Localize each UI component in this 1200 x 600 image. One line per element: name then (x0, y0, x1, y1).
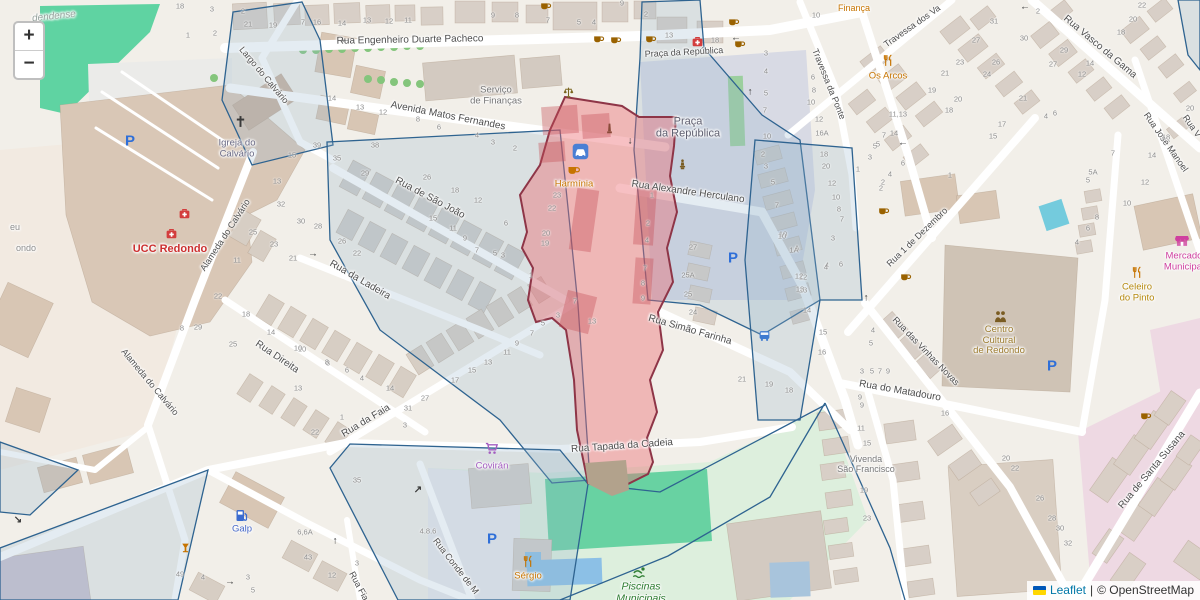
zoom-in-button[interactable]: + (15, 23, 43, 50)
zoom-control: + − (13, 21, 45, 80)
map-canvas[interactable]: Rua Engenheiro Duarte PachecoAvenida Mat… (0, 0, 1200, 600)
openstreetmap-link[interactable]: © OpenStreetMap (1097, 583, 1194, 597)
zoom-out-button[interactable]: − (15, 51, 43, 78)
attribution-bar: Leaflet | © OpenStreetMap (1027, 581, 1200, 600)
ukraine-flag-icon (1033, 586, 1046, 595)
attribution-separator: | (1090, 583, 1093, 597)
centro-cultural-building (942, 245, 1078, 392)
leaflet-link[interactable]: Leaflet (1050, 583, 1086, 597)
